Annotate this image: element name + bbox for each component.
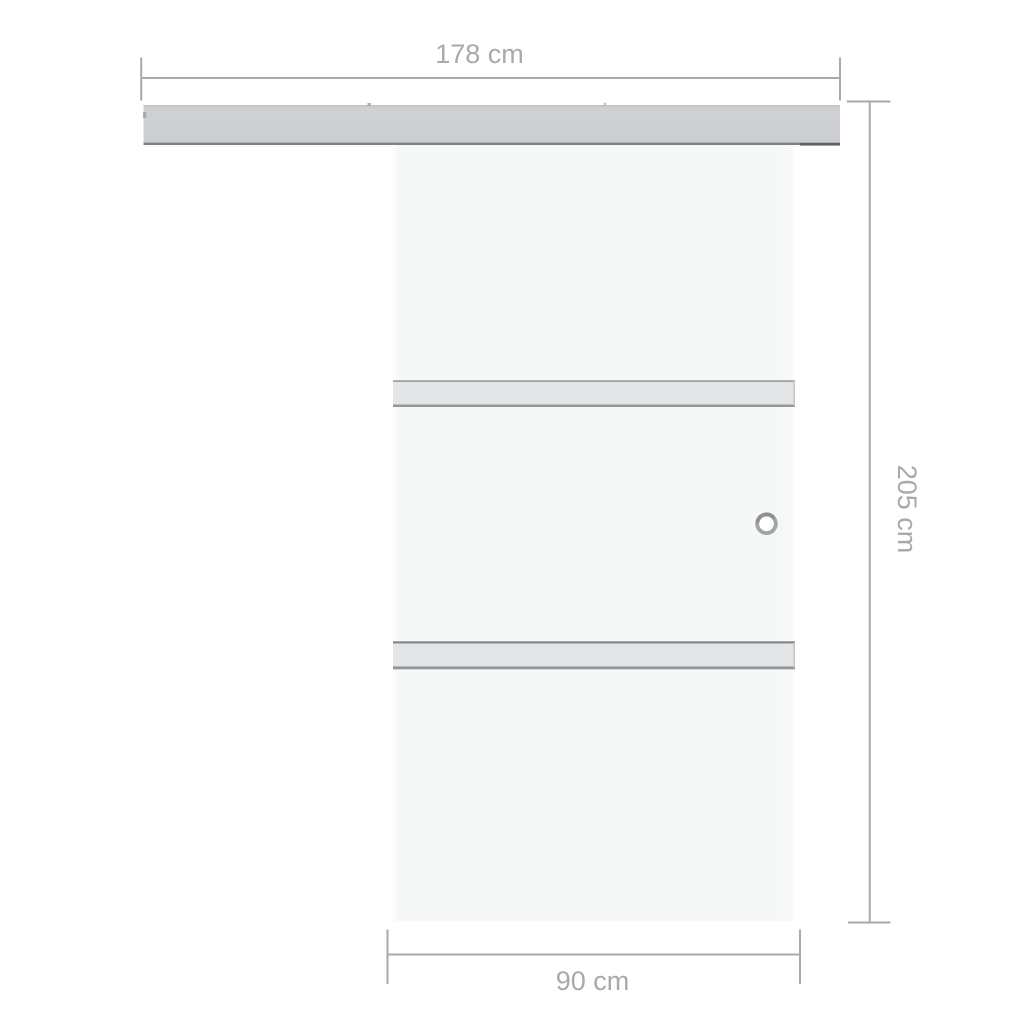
svg-text:205 cm: 205 cm xyxy=(892,465,922,554)
svg-text:178 cm: 178 cm xyxy=(435,39,524,69)
svg-text:90 cm: 90 cm xyxy=(556,966,630,996)
